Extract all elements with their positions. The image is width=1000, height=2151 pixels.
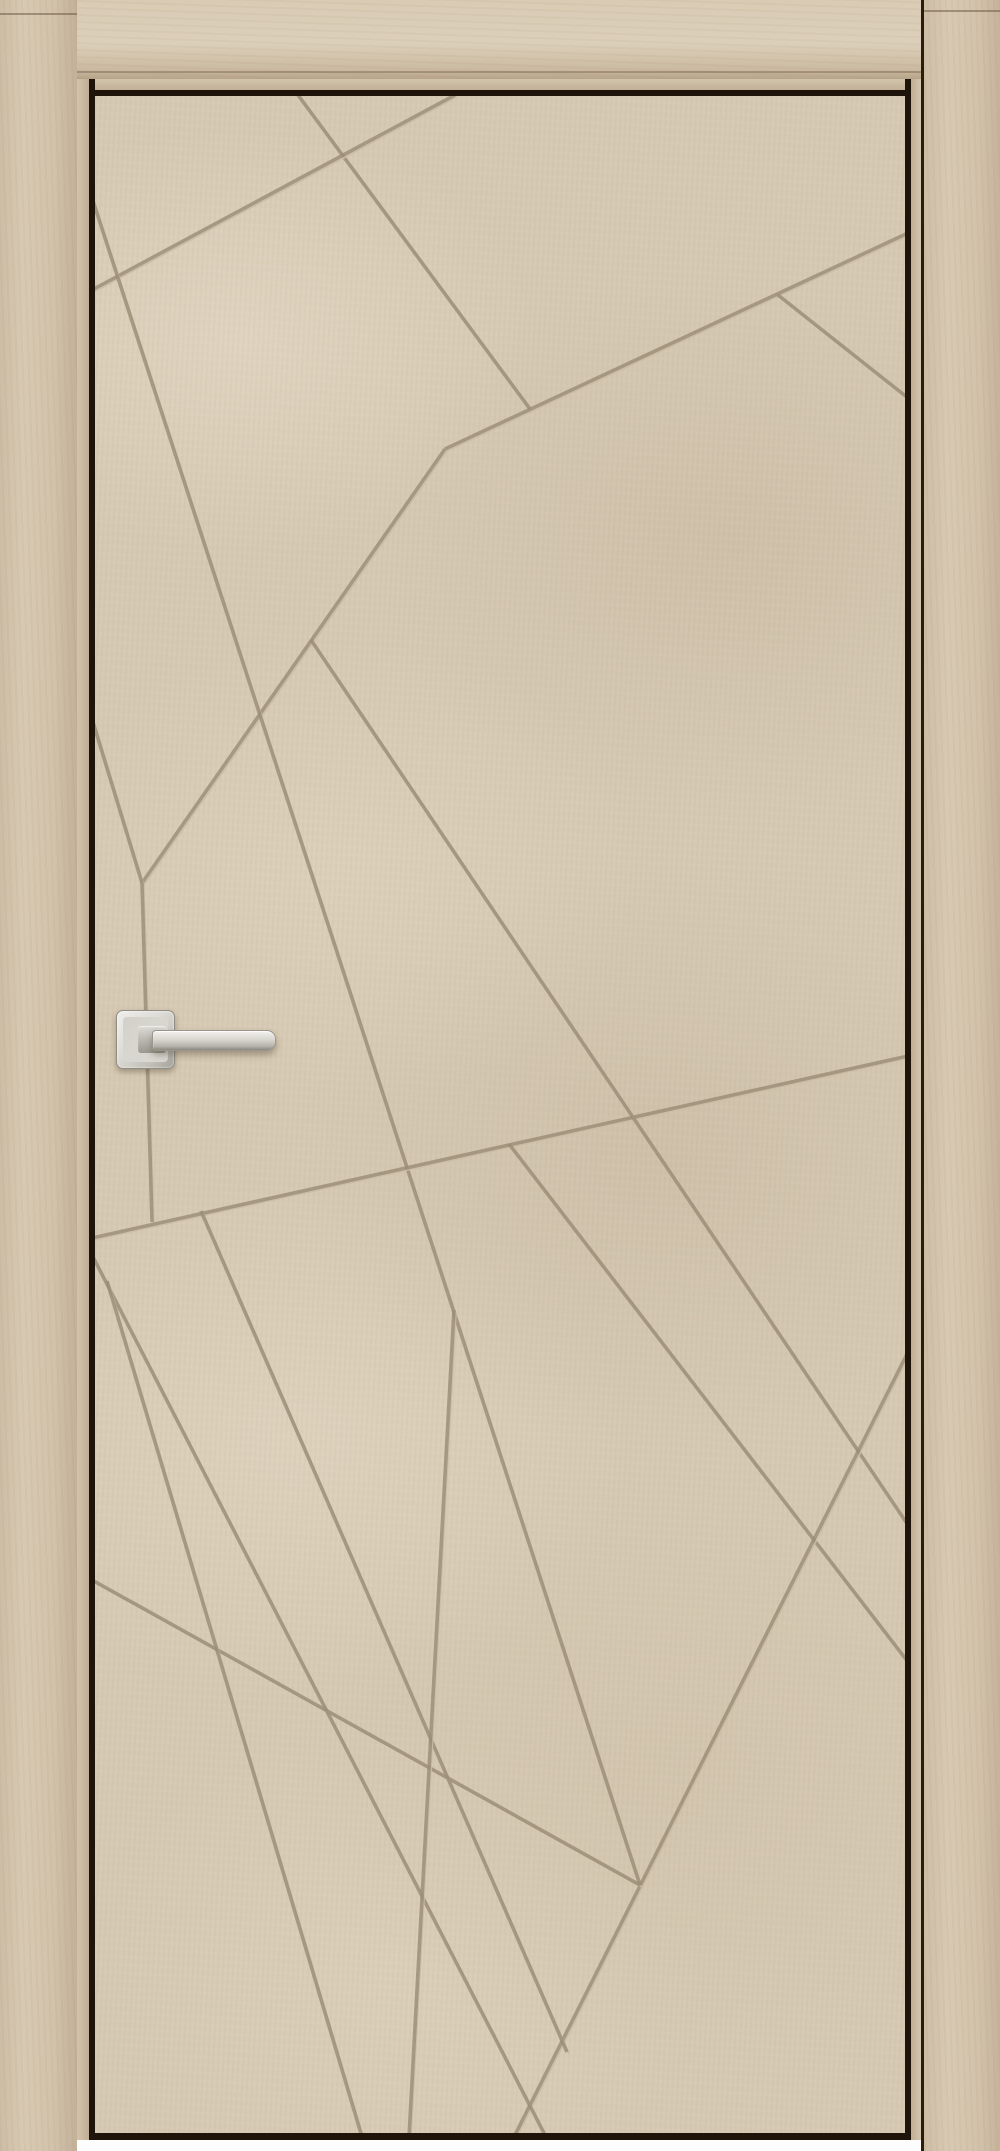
concrete-grain-texture (95, 96, 905, 2133)
door-leaf-panel (95, 96, 905, 2133)
door-frame-left-jamb (0, 0, 80, 2151)
frame-reveal-right (911, 79, 921, 2151)
frame-reveal-left (77, 79, 89, 2151)
jamb-joint-seam (924, 10, 1000, 12)
floor-strip (77, 2140, 921, 2151)
shadow-gap-bottom (89, 2133, 911, 2140)
shadow-gap-right (905, 79, 911, 2140)
jamb-joint-seam (0, 13, 77, 15)
door-frame-head-casing (77, 0, 921, 82)
door-frame-right-jamb (921, 0, 1000, 2151)
frame-reveal-top (77, 79, 921, 90)
door-product-photo (0, 0, 1000, 2151)
handle-lever (152, 1030, 276, 1051)
